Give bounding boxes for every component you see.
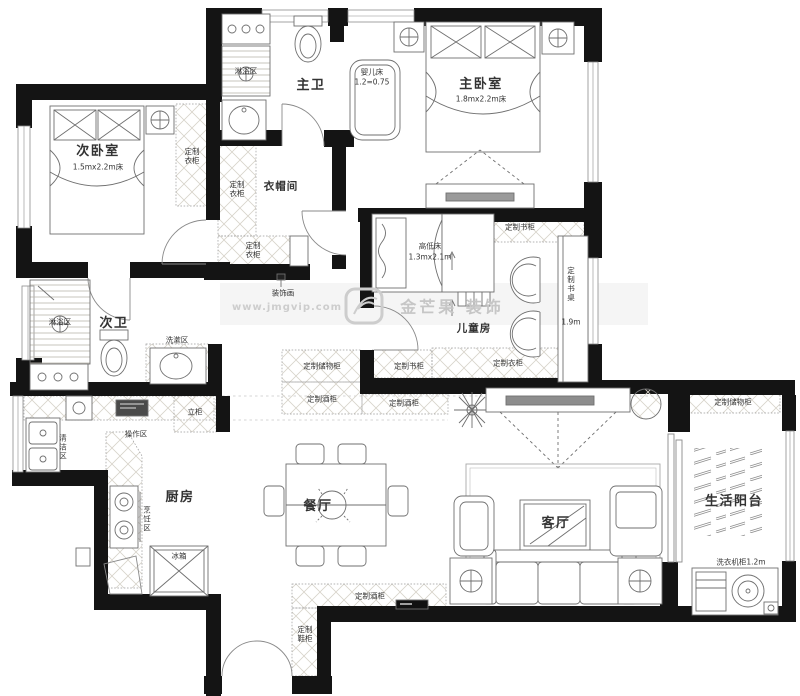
zone-label-operation: 操作区 — [125, 430, 148, 439]
cabinet-label-bookcase-2: 定制书柜 — [394, 362, 424, 371]
window-master-right — [588, 62, 598, 182]
entry-threshold-marker — [396, 600, 428, 609]
cabinet-label-bookcase-1: 定制书柜 — [505, 223, 535, 232]
nightstand-master-right — [542, 22, 574, 54]
nightstand-second-bedroom — [146, 106, 174, 134]
second-bath-toilet — [100, 330, 128, 376]
cabinet-label-wine-2: 定制酒柜 — [389, 399, 419, 408]
furniture-label-baby-bed: 婴儿床 — [361, 68, 384, 77]
room-label-cloakroom: 衣帽间 — [264, 181, 299, 194]
side-table-left — [450, 558, 492, 604]
cabinet-label-wardrobe-1: 定制衣柜 — [183, 147, 201, 165]
room-label-kids-room: 儿童房 — [457, 323, 492, 336]
window-balcony-right — [786, 431, 794, 561]
kitchen-flue — [76, 548, 90, 566]
room-label-living: 客厅 — [541, 516, 570, 532]
furniture-label-bunk-bed: 高低床 — [419, 242, 442, 251]
cloakroom-end-panel — [290, 236, 308, 266]
floor-plan-canvas — [0, 0, 800, 696]
furniture-label-fridge: 冰箱 — [172, 552, 187, 561]
cabinet-label-desk: 定制书桌 — [566, 266, 575, 302]
watermark-brand: 金芒果 装饰 — [400, 297, 504, 316]
zone-label-shower-master: 淋浴区 — [235, 67, 258, 76]
furniture-size-bunk-bed: 1.3mx2.1m — [409, 253, 452, 262]
room-size-second-bedroom: 1.5mx2.2m床 — [73, 163, 123, 172]
zone-label-shower-second: 淋浴区 — [49, 318, 72, 327]
room-label-balcony: 生活阳台 — [705, 494, 763, 510]
furniture-label-washer-cabinet: 洗衣机柜1.2m — [716, 558, 765, 567]
room-label-master-bath: 主卫 — [296, 78, 325, 94]
dining-table — [286, 464, 386, 546]
kitchen-hob-appliance — [66, 396, 92, 420]
watermark-url: www.jmgvip.com — [232, 302, 342, 314]
master-bath-sink — [222, 100, 266, 140]
furniture-size-baby-bed: 1.2=0.75 — [355, 78, 390, 87]
cabinet-label-wine-3: 定制酒柜 — [355, 592, 385, 601]
cabinet-label-storage-2: 定制储物柜 — [714, 398, 752, 407]
zone-label-clean: 清洁区 — [58, 434, 67, 461]
armchair-right — [610, 486, 662, 556]
tv-cabinet-master — [426, 150, 534, 208]
kitchen-cooktop — [110, 486, 140, 548]
window-nursery-top — [348, 10, 414, 22]
master-bath-toilet — [294, 16, 322, 62]
nightstand-master-left — [394, 22, 424, 52]
cabinet-label-tall: 立柜 — [188, 408, 203, 417]
room-label-second-bedroom: 次卧室 — [76, 144, 120, 160]
cabinet-label-wardrobe-3: 定制衣柜 — [244, 241, 262, 259]
washer-cabinet — [692, 568, 778, 615]
room-label-dining: 餐厅 — [303, 499, 332, 515]
kitchen-sink — [26, 418, 60, 472]
room-label-second-bath: 次卫 — [99, 316, 128, 332]
sofa — [484, 550, 636, 604]
door-entry — [222, 641, 292, 676]
round-chair — [631, 389, 661, 419]
cabinet-size-desk: 1.9m — [561, 318, 580, 327]
armchair-left — [454, 496, 494, 556]
door-master-bath — [282, 104, 324, 146]
cabinet-label-wardrobe-2: 定制衣柜 — [228, 180, 246, 198]
master-bath-vanity — [222, 14, 270, 44]
plant — [454, 392, 490, 428]
window-second-bedroom-left — [18, 126, 30, 228]
floor-plan: 次卧室 1.5mx2.2m床 定制衣柜 淋浴区 主卫 婴儿床 1.2=0.75 … — [0, 0, 800, 696]
side-table-right — [618, 558, 662, 604]
drying-racks — [694, 448, 762, 536]
room-label-kitchen: 厨房 — [165, 490, 194, 506]
cabinet-label-shoe: 定制鞋柜 — [296, 625, 314, 643]
cabinet-label-wine-1: 定制酒柜 — [307, 395, 337, 404]
second-bath-vanity — [30, 364, 88, 390]
zone-label-wash: 洗漱区 — [166, 336, 189, 345]
label-decor-painting: 装饰画 — [272, 289, 295, 298]
door-master-suite — [302, 211, 346, 255]
cabinet-label-storage-1: 定制储物柜 — [303, 362, 341, 371]
door-second-bedroom — [162, 220, 206, 264]
tv-cabinet-living — [486, 388, 630, 468]
door-second-bath — [88, 278, 130, 320]
cabinet-label-wardrobe-4: 定制衣柜 — [493, 359, 523, 368]
wash-basin — [150, 348, 206, 384]
window-kitchen-left — [13, 396, 23, 472]
room-size-master-bedroom: 1.8mx2.2m床 — [456, 95, 506, 104]
zone-label-cooking: 烹饪区 — [142, 506, 151, 533]
window-kids-right — [588, 258, 598, 344]
room-label-master-bedroom: 主卧室 — [459, 77, 503, 93]
door-balcony-sliding — [668, 434, 682, 562]
kids-desk — [558, 236, 588, 382]
kitchen-microwave — [116, 400, 148, 416]
